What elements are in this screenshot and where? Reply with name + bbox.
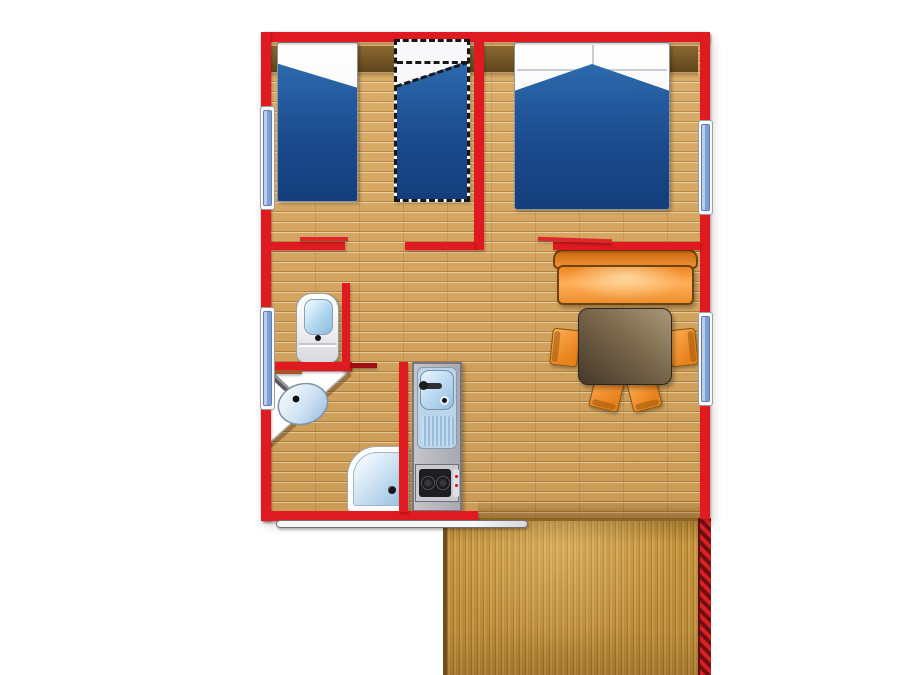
window-glass [263,110,272,206]
sink-drainer-ribs [422,416,454,446]
hob-surface [419,469,451,497]
window-icon [698,312,713,406]
wall-bedrooms-segment [553,242,700,250]
toilet-tank-line [299,343,336,345]
hob-knob [455,475,458,478]
terrace-threshold-shadow [478,499,700,518]
blanket [278,61,357,201]
window-glass [263,311,272,406]
patio-sliding-door [276,520,528,528]
shower-tray [353,452,403,506]
bath-door-leaf [350,363,377,368]
window-glass [701,124,710,211]
sink-drain [440,396,449,405]
wall-bedroom-divider [474,42,484,250]
shower-drain [388,486,396,494]
wall-right [700,32,710,519]
wall-top [261,32,710,42]
wall-kitchen [399,362,408,512]
window-icon [260,106,275,210]
wall-wc-right [342,283,350,371]
sink-basin [420,370,454,410]
double-bed-icon [514,42,670,210]
toilet-lid [304,299,333,335]
wall-bedrooms-segment [271,242,345,250]
window-glass [701,316,710,402]
sofa-icon [553,249,698,305]
kitchen-sink-module [417,367,457,449]
bedroom-left-door-leaf [300,237,348,241]
single-bed-icon [277,42,358,202]
kitchen-unit-icon [412,362,462,512]
wall-bedrooms-segment [405,242,474,250]
window-icon [260,307,275,410]
hob-knob [455,484,458,487]
burner-icon [421,476,435,490]
burner-icon [436,476,450,490]
floor-plan-canvas [0,0,900,675]
chair-icon [549,328,581,368]
hob-icon [415,464,459,502]
terrace-railing [698,518,711,675]
toilet-flush-dot [315,335,321,341]
terrace-deck [443,518,700,675]
hob-knob-panel [453,469,459,497]
blanket [515,61,669,209]
corner-washbasin-icon [263,368,353,450]
sofa-seat [557,265,694,305]
faucet-icon [420,383,442,389]
dining-table-icon [578,308,672,385]
window-icon [698,120,713,215]
toilet-icon [296,293,339,363]
